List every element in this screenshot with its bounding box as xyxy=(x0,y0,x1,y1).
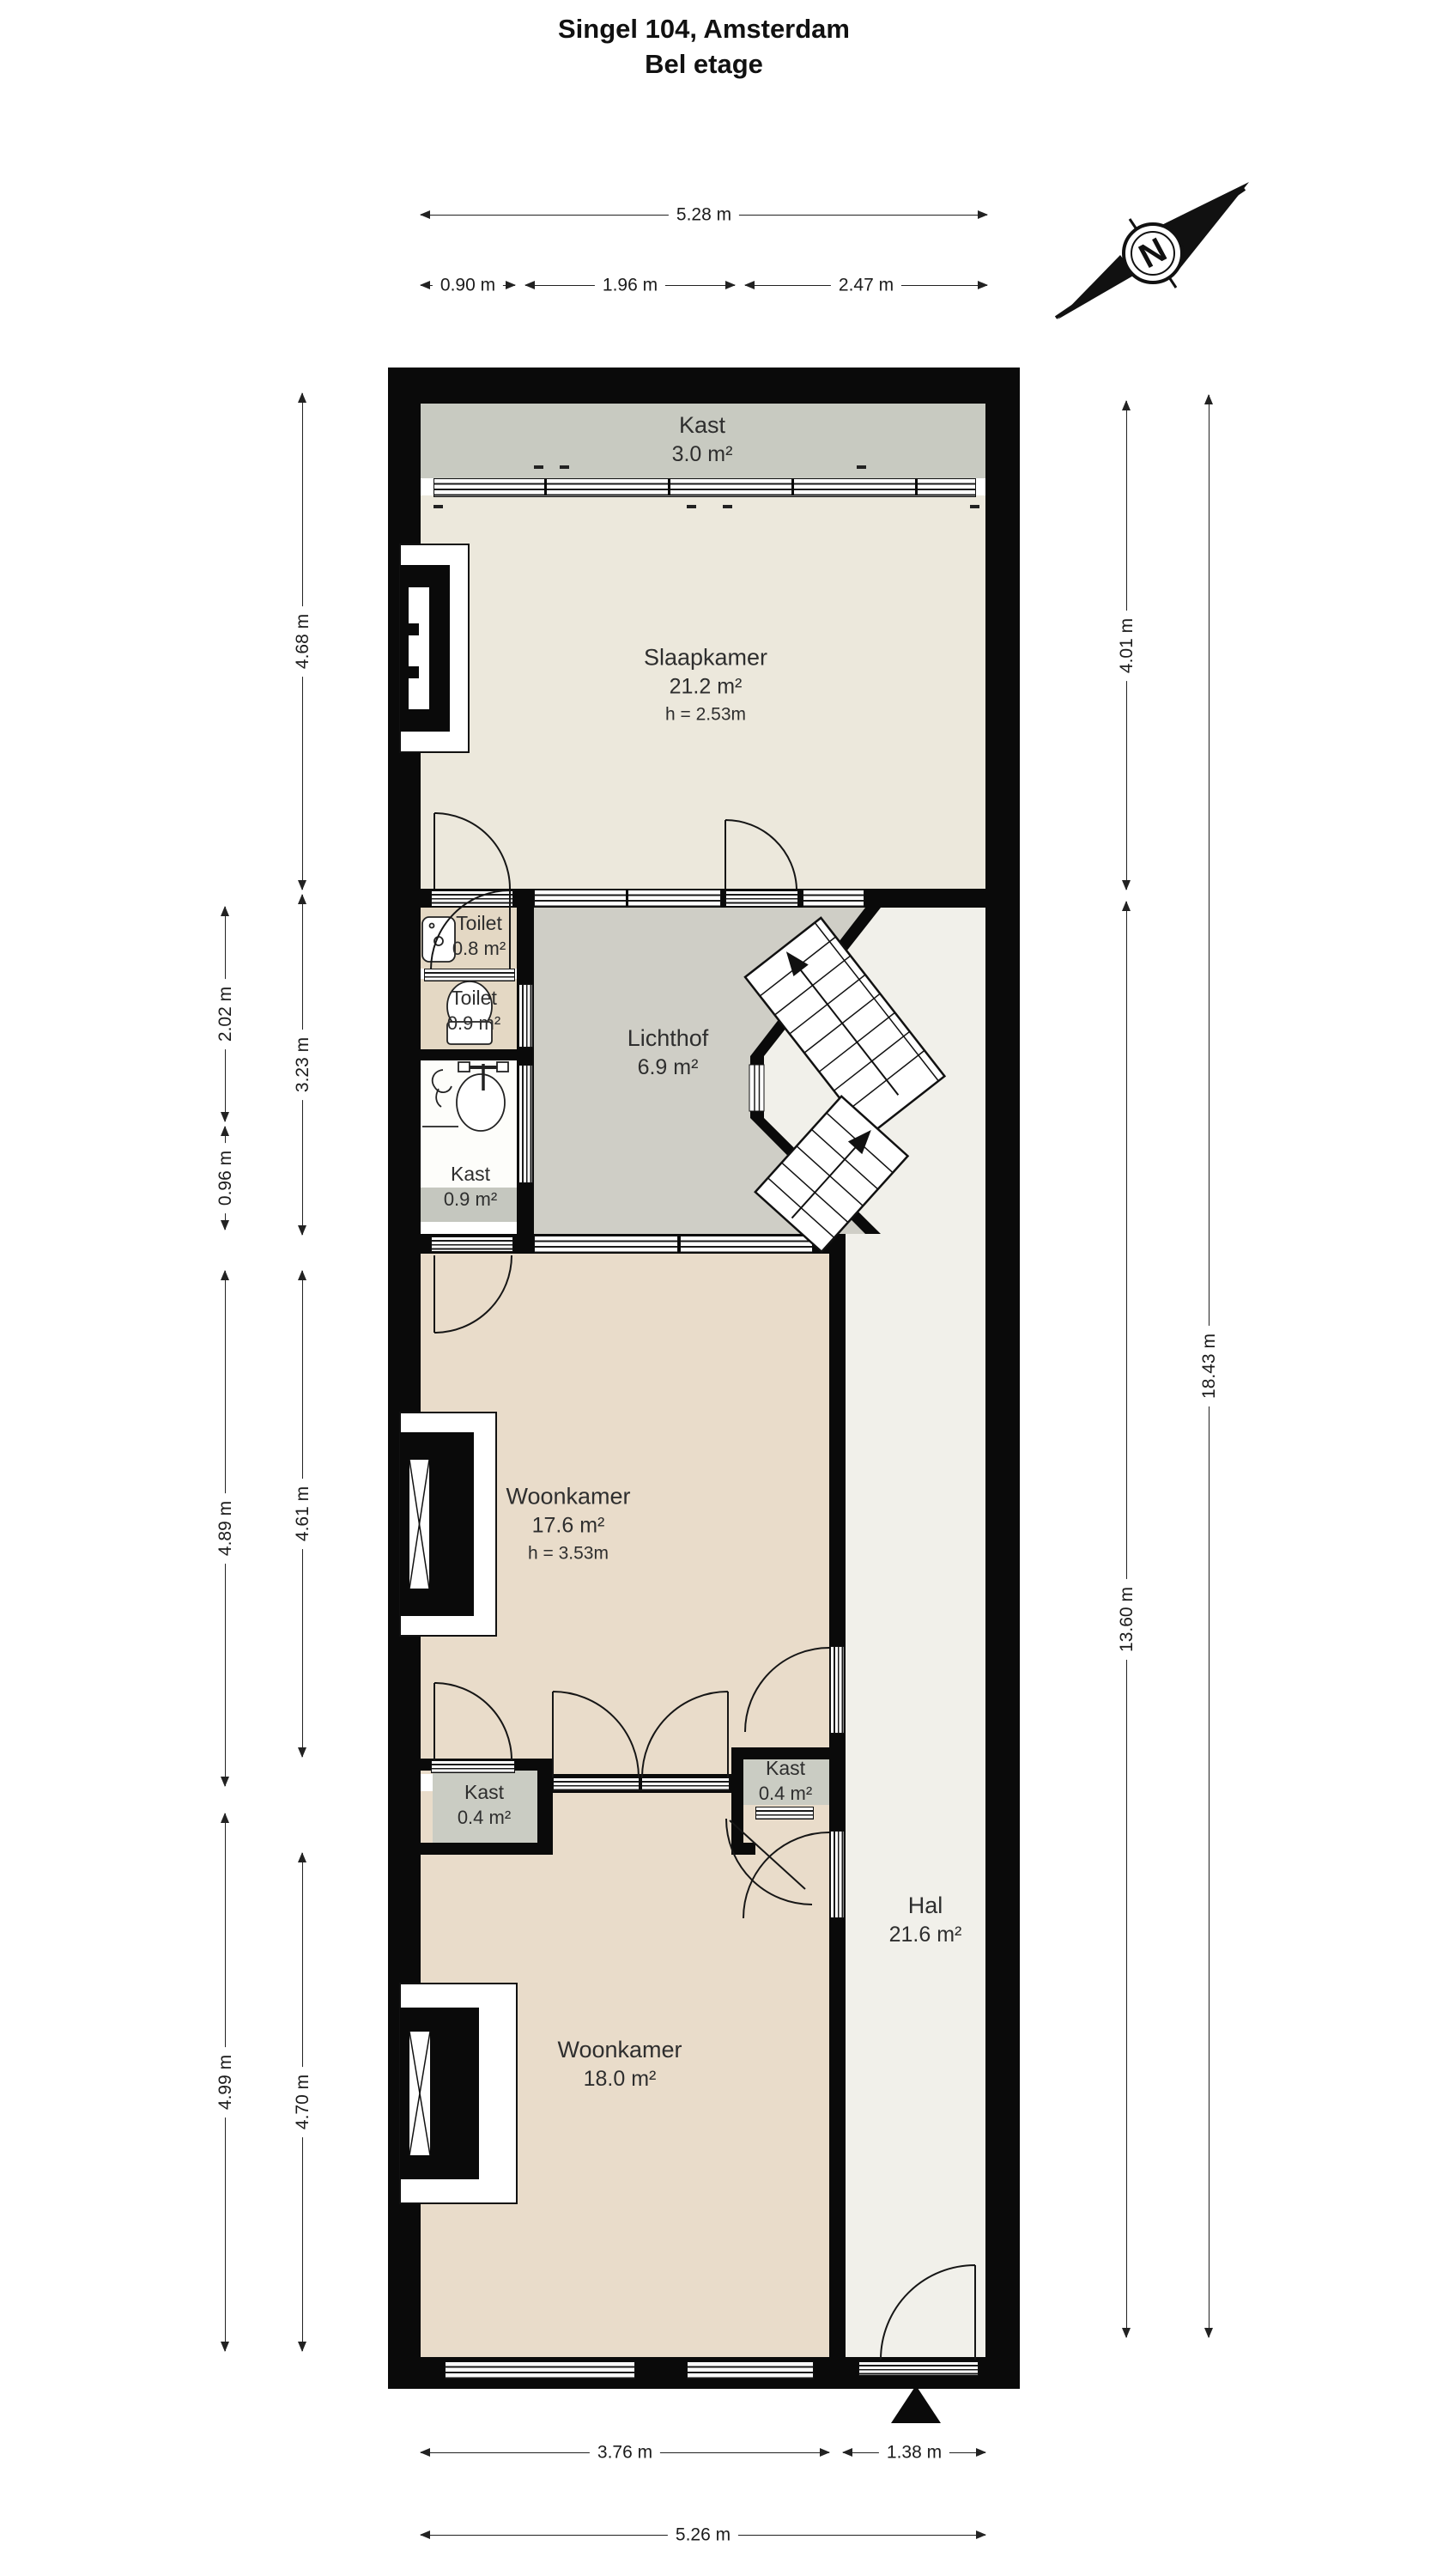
dim-label: 4.68 m xyxy=(293,606,313,677)
vent-tick xyxy=(687,505,696,508)
arrowhead xyxy=(298,880,306,890)
room-area: 0.8 m² xyxy=(452,937,506,962)
room-area: 0.9 m² xyxy=(444,1188,497,1212)
arrowhead xyxy=(298,1270,306,1280)
room-area: 0.4 m² xyxy=(759,1782,812,1807)
room-name: Kast xyxy=(759,1756,812,1782)
arrowhead xyxy=(298,894,306,904)
title-floor: Bel etage xyxy=(558,47,850,82)
dim-label: 18.43 m xyxy=(1199,1326,1220,1406)
arrowhead xyxy=(1122,880,1131,890)
room-label-woonkamer2: Woonkamer 18.0 m² xyxy=(557,2035,682,2093)
dim-label: 4.70 m xyxy=(293,2067,313,2137)
room-label-kast-left: Kast 0.4 m² xyxy=(458,1780,511,1830)
room-name: Woonkamer xyxy=(557,2035,682,2065)
arrowhead xyxy=(298,1225,306,1236)
arrowhead xyxy=(524,281,535,289)
window xyxy=(518,1065,533,1183)
dim-label: 4.61 m xyxy=(293,1479,313,1549)
entrance-marker-triangle xyxy=(891,2385,941,2423)
dim-label: 2.47 m xyxy=(831,276,901,296)
dim-label: 1.38 m xyxy=(879,2443,949,2464)
arrowhead xyxy=(506,281,516,289)
dim-label: 4.01 m xyxy=(1117,610,1137,680)
dim-left-inner-4: 4.70 m xyxy=(302,1853,303,2351)
room-label-hal: Hal 21.6 m² xyxy=(889,1891,962,1949)
dim-bottom-total: 5.26 m xyxy=(421,2535,985,2536)
window xyxy=(687,2361,814,2379)
room-area: 0.4 m² xyxy=(458,1806,511,1831)
window xyxy=(518,984,533,1048)
arrowhead xyxy=(976,2448,986,2457)
arrowhead xyxy=(420,2530,430,2539)
wall-toilet1-2 xyxy=(421,1049,517,1060)
floor-hal xyxy=(846,908,985,2357)
room-label-woonkamer1: Woonkamer 17.6 m² h = 3.53m xyxy=(506,1482,630,1565)
room-name: Toilet xyxy=(452,911,506,937)
arrowhead xyxy=(221,1270,229,1280)
dim-left-outer-1: 2.02 m xyxy=(225,907,226,1121)
door-sill xyxy=(725,890,798,907)
title-address: Singel 104, Amsterdam xyxy=(558,12,850,47)
room-label-kast-top: Kast 3.0 m² xyxy=(672,410,733,469)
arrowhead xyxy=(978,210,988,219)
room-name: Kast xyxy=(458,1780,511,1806)
arrowhead xyxy=(1122,400,1131,410)
arrowhead xyxy=(842,2448,852,2457)
dim-left-inner-3: 4.61 m xyxy=(302,1271,303,1757)
vent-tick xyxy=(534,465,543,469)
vent-tick xyxy=(970,505,979,508)
dim-left-outer-2: 0.96 m xyxy=(225,1127,226,1230)
arrowhead xyxy=(744,281,755,289)
arrowhead xyxy=(298,2342,306,2352)
door-sill xyxy=(431,1760,515,1773)
arrowhead xyxy=(298,1747,306,1758)
dim-label: 3.23 m xyxy=(293,1030,313,1100)
page-title: Singel 104, Amsterdam Bel etage xyxy=(558,12,850,82)
dim-top-seg2: 1.96 m xyxy=(525,285,735,286)
room-label-kast-right: Kast 0.4 m² xyxy=(759,1756,812,1806)
arrowhead xyxy=(221,1777,229,1787)
window xyxy=(445,2361,635,2379)
wall-kast-left-bottom xyxy=(421,1843,549,1855)
dim-left-inner-1: 4.68 m xyxy=(302,393,303,890)
room-label-lichthof: Lichthof 6.9 m² xyxy=(627,1024,709,1082)
vent-tick xyxy=(560,465,569,469)
dim-top-seg1: 0.90 m xyxy=(421,285,515,286)
room-label-slaapkamer: Slaapkamer 21.2 m² h = 2.53m xyxy=(644,643,767,726)
window xyxy=(680,1236,813,1253)
dim-label: 4.99 m xyxy=(215,2047,236,2117)
door-sill xyxy=(431,1236,513,1252)
dim-label: 0.90 m xyxy=(433,276,503,296)
arrowhead xyxy=(976,2530,986,2539)
room-name: Kast xyxy=(444,1162,497,1188)
arrowhead xyxy=(221,2342,229,2352)
dim-label: 4.89 m xyxy=(215,1493,236,1564)
room-name: Woonkamer xyxy=(506,1482,630,1512)
dim-label: 3.76 m xyxy=(590,2443,660,2464)
arrowhead xyxy=(221,1112,229,1122)
arrowhead xyxy=(1122,2328,1131,2338)
arrowhead xyxy=(221,1220,229,1230)
room-area: 18.0 m² xyxy=(557,2065,682,2093)
arrowhead xyxy=(420,281,430,289)
room-ceiling-height: h = 2.53m xyxy=(644,702,767,726)
glazed-door xyxy=(830,1831,845,1918)
compass-north-label: N xyxy=(1133,231,1173,276)
room-label-toilet2: Toilet 0.9 m² xyxy=(447,986,500,1036)
room-name: Slaapkamer xyxy=(644,643,767,673)
dim-label: 1.96 m xyxy=(595,276,665,296)
room-name: Kast xyxy=(672,410,733,440)
closet-divider xyxy=(668,478,670,495)
room-area: 3.0 m² xyxy=(672,440,733,469)
arrowhead xyxy=(420,2448,430,2457)
room-ceiling-height: h = 3.53m xyxy=(506,1541,630,1564)
arrowhead xyxy=(298,392,306,403)
window-divider xyxy=(626,890,628,906)
dim-bottom-seg2: 1.38 m xyxy=(843,2452,985,2453)
window xyxy=(534,1236,678,1253)
arrowhead xyxy=(420,210,430,219)
room-name: Toilet xyxy=(447,986,500,1012)
wall-hal-divider xyxy=(829,1234,846,2357)
arrowhead xyxy=(1204,394,1213,404)
vent-tick xyxy=(433,505,443,508)
wall-kast-right-stub xyxy=(731,1843,755,1855)
dim-right-inner-1: 4.01 m xyxy=(1126,401,1127,890)
arrowhead xyxy=(298,1852,306,1862)
arrowhead xyxy=(978,281,988,289)
dim-right-inner-2: 13.60 m xyxy=(1126,902,1127,2337)
door-sill-divider xyxy=(639,1777,642,1789)
room-name: Lichthof xyxy=(627,1024,709,1054)
compass-needle-south xyxy=(1058,255,1135,319)
room-area: 0.9 m² xyxy=(447,1012,500,1036)
vent-tick xyxy=(723,505,732,508)
wall-right xyxy=(985,368,1020,2389)
arrowhead xyxy=(820,2448,830,2457)
dim-bottom-seg1: 3.76 m xyxy=(421,2452,829,2453)
dim-label: 13.60 m xyxy=(1117,1579,1137,1660)
closet-divider xyxy=(791,478,794,495)
wall-kast-left-right xyxy=(537,1759,553,1855)
door-sill xyxy=(755,1807,814,1820)
dim-top-seg3: 2.47 m xyxy=(745,285,987,286)
compass-needle-north xyxy=(1139,182,1249,276)
entrance-door-sill xyxy=(858,2361,979,2376)
dim-left-inner-2: 3.23 m xyxy=(302,895,303,1235)
dim-left-outer-3: 4.89 m xyxy=(225,1271,226,1786)
arrowhead xyxy=(221,906,229,916)
room-label-toilet1: Toilet 0.8 m² xyxy=(452,911,506,961)
wall-top xyxy=(388,368,1020,404)
compass-rose: N xyxy=(1056,182,1249,319)
dim-left-outer-4: 4.99 m xyxy=(225,1814,226,2351)
dim-label: 2.02 m xyxy=(215,979,236,1049)
arrowhead xyxy=(221,1126,229,1136)
wall-kast-right-left xyxy=(731,1747,743,1855)
arrowhead xyxy=(725,281,736,289)
closet-front-window xyxy=(433,478,976,497)
glazed-door xyxy=(830,1646,845,1734)
wall-left xyxy=(388,368,421,2389)
dim-label: 5.28 m xyxy=(669,205,739,226)
room-label-kast-mid: Kast 0.9 m² xyxy=(444,1162,497,1212)
closet-divider xyxy=(544,478,547,495)
room-area: 6.9 m² xyxy=(627,1054,709,1082)
arrowhead xyxy=(221,1813,229,1823)
dim-label: 5.26 m xyxy=(668,2525,738,2546)
floorplan-page: Singel 104, Amsterdam Bel etage xyxy=(0,0,1449,2576)
room-area: 21.6 m² xyxy=(889,1921,962,1949)
door-sill xyxy=(431,890,513,907)
window xyxy=(803,890,864,908)
closet-divider xyxy=(915,478,918,495)
room-area: 17.6 m² xyxy=(506,1512,630,1540)
dim-right-outer-1: 18.43 m xyxy=(1209,395,1210,2337)
room-area: 21.2 m² xyxy=(644,673,767,702)
vent-tick xyxy=(857,465,866,469)
dim-label: 0.96 m xyxy=(215,1143,236,1213)
dim-top-total: 5.28 m xyxy=(421,215,987,216)
room-name: Hal xyxy=(889,1891,962,1921)
arrowhead xyxy=(1122,901,1131,911)
door-sill xyxy=(424,969,515,981)
arrowhead xyxy=(1204,2328,1213,2338)
